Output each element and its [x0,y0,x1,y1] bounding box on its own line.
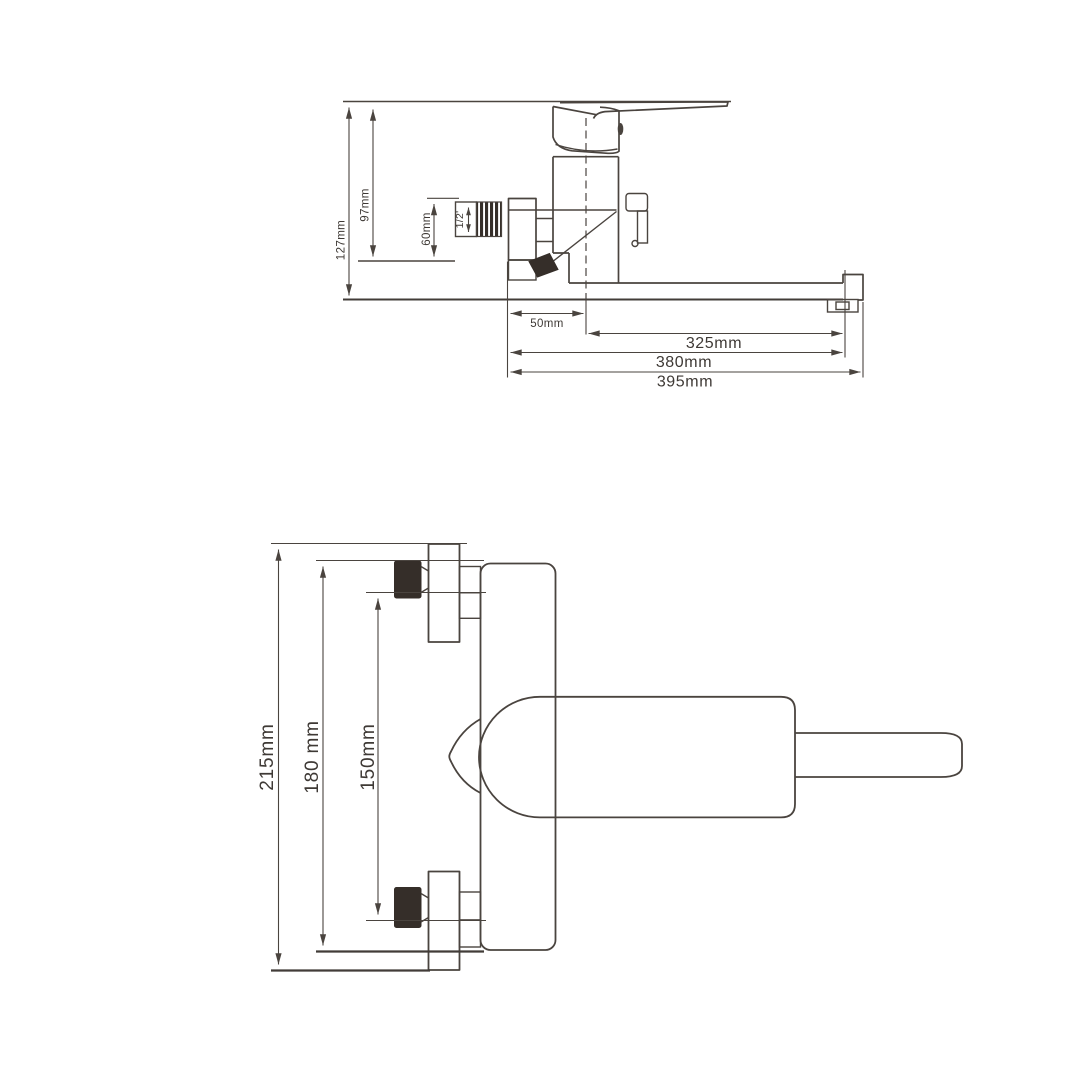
nut-link-bottom [421,894,429,923]
body-column [481,564,556,951]
front-view: 215mm 180 mm 150mm [257,544,962,971]
wall-fitting-body [509,199,537,261]
dim-395-label: 395mm [657,374,713,391]
connector-rect-top-a [460,567,481,593]
dim-50-label: 50mm [530,318,564,330]
spout-outline [569,275,863,301]
dimension-127mm: 127mm [336,108,350,296]
connector-rect-bottom-b [460,920,481,947]
gasket-wedge [529,254,558,278]
faucet-technical-drawing: 127mm 97mm 60mm 1/2' 50mm 325mm 3 [0,0,1080,1080]
diverter-tab [626,194,648,212]
connector-link-lines [536,219,553,242]
dim-97-label: 97mm [360,188,372,222]
nut-link-top [421,567,429,593]
dimension-325mm: 325mm [589,334,843,353]
dim-180-label: 180 mm [302,720,323,793]
drawing-canvas: 127mm 97mm 60mm 1/2' 50mm 325mm 3 [0,0,1080,1080]
dim-127-label: 127mm [336,220,348,260]
dim-150-label: 150mm [358,723,379,790]
dimension-395mm: 395mm [511,372,861,391]
handle-lever-outline [560,102,728,119]
aerator-insert [836,302,849,310]
connector-rect-bottom-a [460,892,481,920]
dimension-thread: 1/2' [454,208,469,233]
dimension-97mm: 97mm [360,110,374,257]
dim-thread-label: 1/2' [454,211,466,229]
connector-rect-top-b [460,593,481,619]
dim-380-label: 380mm [656,354,712,371]
mounting-nut-bottom [395,888,422,928]
dimension-180mm: 180 mm [302,561,484,952]
dim-215-label: 215mm [257,723,278,790]
threaded-nipple [477,202,502,237]
spout-tip-cone [449,719,480,793]
dimension-380mm: 380mm [511,353,843,372]
dimension-50mm: 50mm [511,314,584,331]
dim-325-label: 325mm [686,335,742,352]
handle-lever [795,733,962,777]
dim-60-label: 60mm [421,212,433,246]
dimension-150mm: 150mm [358,593,486,921]
handle-body [479,697,795,818]
body-diagonal-line [552,212,617,263]
diverter-block [638,211,648,243]
side-view: 127mm 97mm 60mm 1/2' 50mm 325mm 3 [336,102,864,391]
